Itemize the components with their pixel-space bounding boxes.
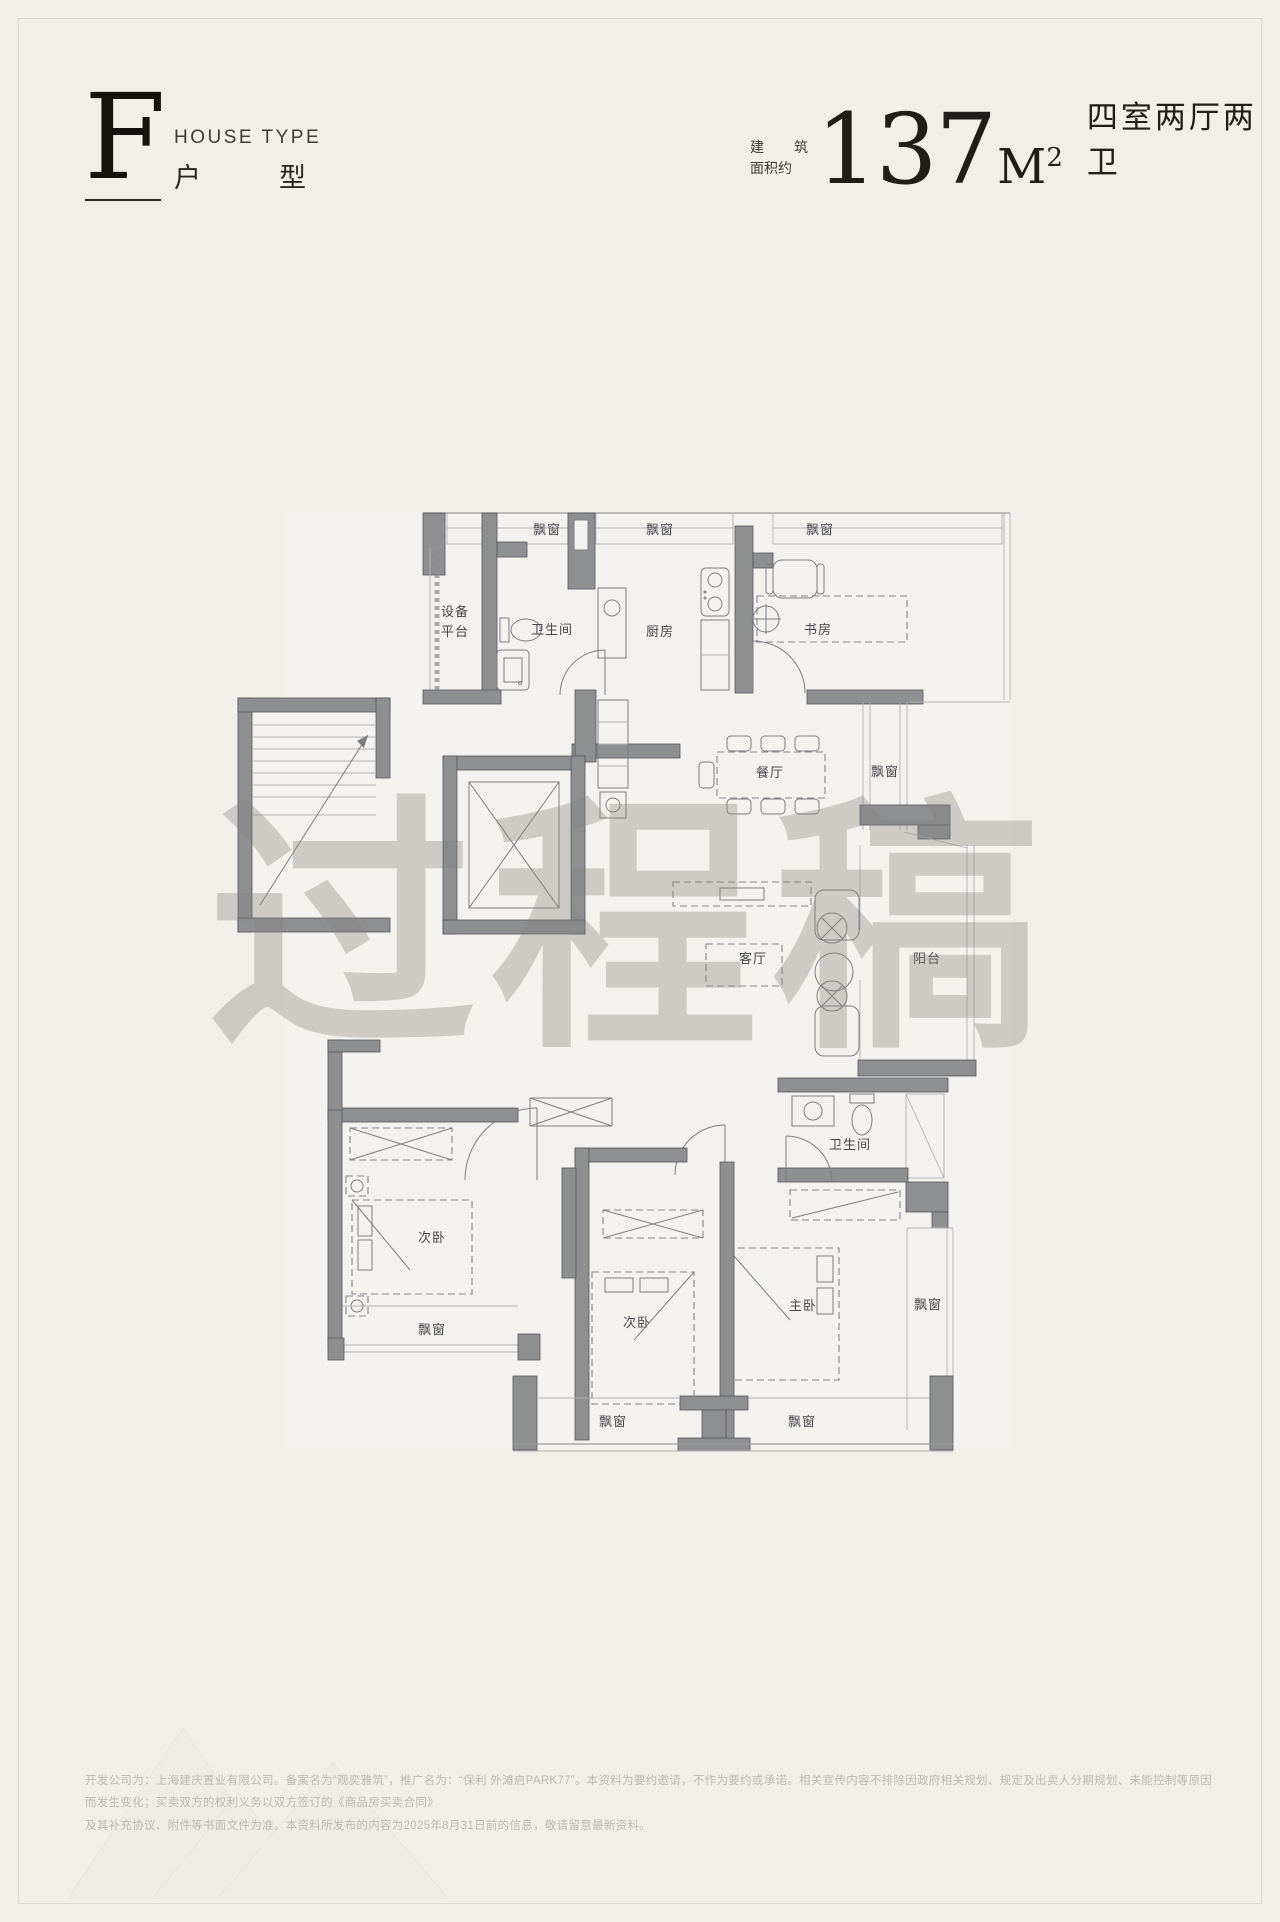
area-unit: M2 [997, 148, 1063, 187]
house-type-zh-char-2: 型 [279, 156, 306, 195]
label-bedroom-middle: 次卧 [623, 1315, 651, 1331]
area-prefix-line2: 面积约 [750, 158, 808, 180]
area-unit-base: M [997, 139, 1046, 195]
label-balcony: 阳台 [913, 952, 941, 967]
brochure-page: F HOUSE TYPE 户 型 建 筑 面积约 137 M2 四室两厅两卫 [0, 0, 1280, 1922]
room-layout-text: 四室两厅两卫 [1087, 92, 1280, 182]
house-type-label-zh: 户 型 [174, 156, 306, 195]
label-living-room: 客厅 [739, 951, 767, 967]
area-prefix-char-1: 建 [750, 137, 764, 159]
label-bay-window-left: 飘窗 [418, 1322, 446, 1338]
label-bay-window-top-2: 飘窗 [646, 522, 674, 538]
disclaimer-line-2: 及其补充协议、附件等书面文件为准。本资料所发布的内容为2025年8月31日前的信… [85, 1815, 1215, 1837]
disclaimer-line-1: 开发公司为：上海建庆置业有限公司。备案名为“观奕雅筑”，推广名为：“保利 外滩启… [85, 1770, 1215, 1815]
label-dining-room: 餐厅 [756, 765, 784, 781]
house-type-letter: F [84, 78, 166, 196]
label-bay-window-top-3: 飘窗 [806, 522, 834, 538]
label-bay-window-master: 飘窗 [914, 1297, 942, 1313]
label-master-bedroom: 主卧 [789, 1299, 817, 1314]
label-bay-window-bottom-2: 飘窗 [788, 1414, 816, 1430]
letter-underline [85, 199, 161, 201]
house-type-zh-char-1: 户 [174, 156, 201, 195]
area-prefix: 建 筑 面积约 [750, 137, 808, 180]
floorplan: 飘窗 飘窗 飘窗 设备 平台 卫生间 厨房 书房 餐厅 飘窗 客厅 阳台 卫生间… [230, 500, 1045, 1460]
label-bay-window-bottom-1: 飘窗 [599, 1414, 627, 1430]
area-unit-sup: 2 [1046, 143, 1063, 173]
area-info: 建 筑 面积约 137 M2 四室两厅两卫 [750, 92, 1280, 187]
disclaimer: 开发公司为：上海建庆置业有限公司。备案名为“观奕雅筑”，推广名为：“保利 外滩启… [85, 1770, 1215, 1837]
label-bay-window-dining: 飘窗 [871, 764, 899, 780]
label-bedroom-left: 次卧 [418, 1230, 446, 1246]
label-study: 书房 [804, 622, 832, 638]
area-value: 137 [816, 113, 995, 187]
floorplan-svg: 飘窗 飘窗 飘窗 设备 平台 卫生间 厨房 书房 餐厅 飘窗 客厅 阳台 卫生间… [230, 500, 1045, 1460]
area-prefix-char-2: 筑 [794, 137, 808, 159]
label-equipment-platform-2: 平台 [441, 625, 469, 640]
label-kitchen: 厨房 [646, 624, 674, 640]
house-type-label-en: HOUSE TYPE [174, 127, 321, 149]
area-prefix-line1: 建 筑 [750, 137, 808, 159]
label-bay-window-top-1: 飘窗 [533, 522, 561, 538]
plan-floor [238, 512, 1011, 1448]
label-bathroom-top: 卫生间 [531, 623, 573, 638]
label-bathroom-2: 卫生间 [829, 1138, 871, 1153]
label-equipment-platform-1: 设备 [441, 604, 469, 620]
